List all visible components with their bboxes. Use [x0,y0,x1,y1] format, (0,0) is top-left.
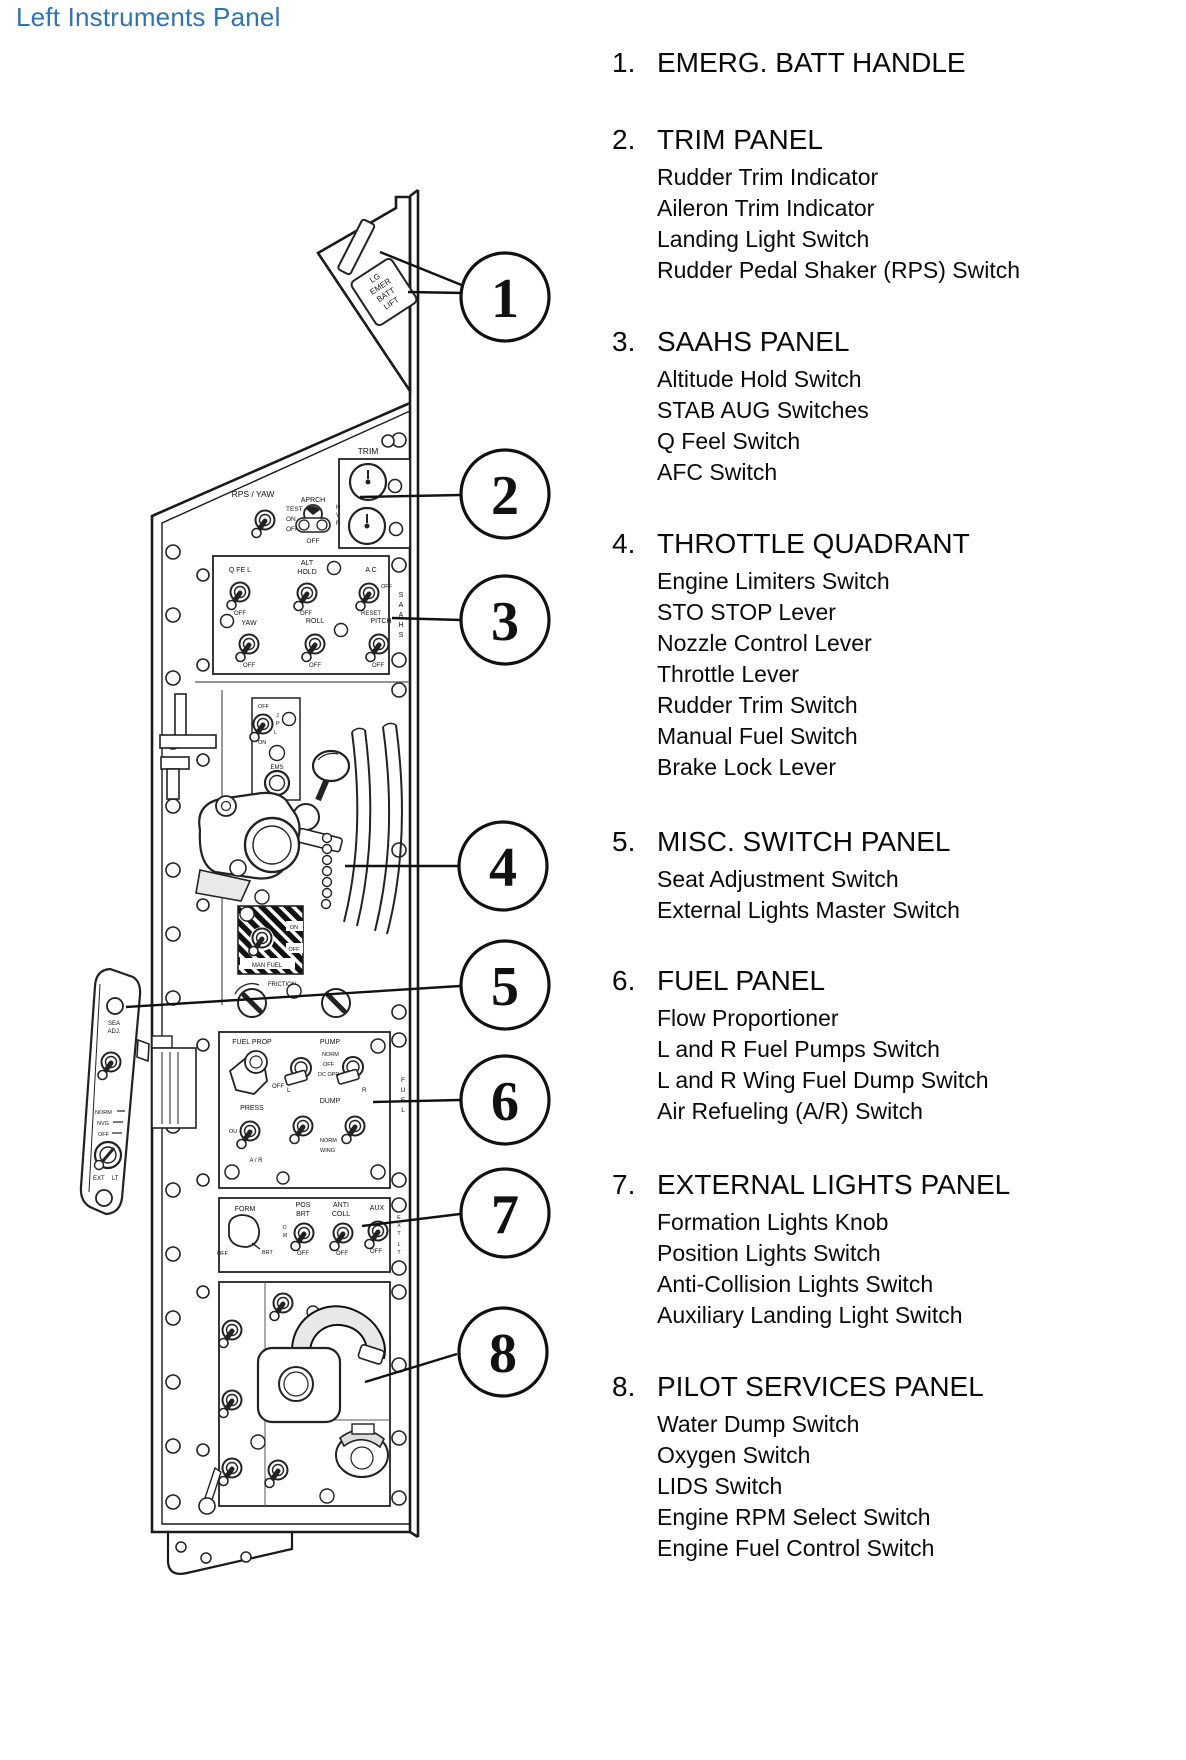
legend-sub: External Lights Master Switch [657,895,1186,926]
anti-coll-label: ANTI [333,1202,349,1209]
svg-text:T: T [397,1231,401,1237]
callout-8: 8 [459,1308,547,1396]
throttle-quadrant: OFF J P L ON EMS [160,682,410,1017]
on-label: ON [290,925,298,931]
off-label: OFF [258,704,270,710]
fuel-prop-label: FUEL PROP [232,1039,272,1046]
legend-sub: Altitude Hold Switch [657,364,1186,395]
seat-adjust-label: SEA [108,1021,120,1027]
legend-item-8: 8.PILOT SERVICES PANEL Water Dump Switch… [612,1370,1186,1564]
svg-text:4: 4 [489,837,517,899]
a-r-label: A / R [249,1158,263,1164]
legend-sub: Auxiliary Landing Light Switch [657,1300,1186,1331]
legend-item-1: 1.EMERG. BATT HANDLE [612,46,1186,80]
rps-yaw-controls: RPS / YAW TEST ON OFF APRCH H V R OFF [232,489,341,545]
off-label: OFF [289,947,301,953]
off-label: OFF [309,663,321,669]
legend-sub: Brake Lock Lever [657,752,1186,783]
svg-text:A: A [399,602,404,609]
legend-sub: Seat Adjustment Switch [657,864,1186,895]
external-lights-master-switch [95,1142,122,1170]
legend-heading: THROTTLE QUADRANT [657,528,970,559]
legend-heading: MISC. SWITCH PANEL [657,826,951,857]
trim-label: TRIM [358,446,379,456]
legend-sub: AFC Switch [657,457,1186,488]
legend-sub: Throttle Lever [657,659,1186,690]
legend-num: 6. [612,964,657,998]
legend-heading: SAAHS PANEL [657,326,849,357]
off-label: OFF [234,611,246,617]
ext-lt-label: LT [112,1176,119,1182]
legend-sub: STAB AUG Switches [657,395,1186,426]
svg-text:2: 2 [491,465,519,527]
man-fuel-label: MAN FUEL [252,963,283,969]
l-label: L [287,1087,291,1094]
legend-num: 2. [612,123,657,157]
legend-num: 7. [612,1168,657,1202]
legend-num: 8. [612,1370,657,1404]
legend-sub: LIDS Switch [657,1471,1186,1502]
svg-text:8: 8 [489,1323,517,1385]
legend-heading: PILOT SERVICES PANEL [657,1371,984,1402]
legend-sub: Rudder Trim Indicator [657,162,1186,193]
svg-text:S: S [399,632,404,639]
callout-3: 3 [461,576,549,664]
l-label: L [274,730,277,736]
on-label: ON [286,516,296,523]
legend-sub: Position Lights Switch [657,1238,1186,1269]
engine-limiters-panel: OFF J P L ON EMS [250,698,300,800]
pos-brt-label: POS [296,1202,311,1209]
reset-label: RESET [361,611,381,617]
legend-sub: Engine Limiters Switch [657,566,1186,597]
callout-6: 6 [461,1056,549,1144]
legend-sub: Formation Lights Knob [657,1207,1186,1238]
dc-opr-label: DC OPR [318,1072,339,1078]
off-label: OFF [297,1251,309,1257]
fuel-vertical-label: F U E L [401,1077,406,1114]
alt-hold-label: ALT [301,560,314,567]
legend-sub: Water Dump Switch [657,1409,1186,1440]
saahs-vertical-label: S A A H S [398,592,403,639]
callouts: 1 2 3 4 5 6 7 8 [459,253,549,1396]
legend-sub: Q Feel Switch [657,426,1186,457]
ou-label: OU [229,1129,237,1135]
off-label: OFF [98,1132,110,1138]
svg-text:L: L [401,1107,405,1114]
v-label: V [336,513,340,519]
fuel-panel: FUEL PROP OFF PUMP NORM OFF DC OPR L R D… [219,1032,406,1188]
legend-sub: Rudder Pedal Shaker (RPS) Switch [657,255,1186,286]
legend-sub: Anti-Collision Lights Switch [657,1269,1186,1300]
legend-sub: Rudder Trim Switch [657,690,1186,721]
j-label: J [276,713,279,719]
norm-label: NORM [320,1138,337,1144]
legend-num: 1. [612,46,657,80]
callout-7: 7 [461,1169,549,1257]
r-label: R [336,521,341,527]
off-label: OFF [300,611,312,617]
rps-yaw-label: RPS / YAW [232,489,275,499]
svg-text:U: U [401,1087,406,1094]
on-label: ON [258,740,266,746]
off-label: OFF [243,663,255,669]
rps-switch [252,511,275,538]
legend-sub: Landing Light Switch [657,224,1186,255]
legend-item-5: 5.MISC. SWITCH PANEL Seat Adjustment Swi… [612,825,1186,926]
aux-label: AUX [370,1205,385,1212]
dim-label: M [283,1233,287,1239]
r-label: R [362,1087,367,1094]
test-label: TEST [286,506,303,513]
anti-coll-label: COLL [332,1211,350,1218]
off-label: OFF [323,1062,335,1068]
norm-label: NORM [95,1110,112,1116]
brt-label: BRT [262,1250,274,1256]
lever-tracks [344,723,402,934]
callout-1: 1 [461,253,549,341]
svg-text:1: 1 [491,268,519,330]
pump-label: PUMP [320,1039,341,1046]
legend-heading: TRIM PANEL [657,124,823,155]
press-label: PRESS [240,1105,264,1112]
svg-text:5: 5 [491,956,519,1018]
legend-sub: L and R Wing Fuel Dump Switch [657,1065,1186,1096]
throttle-lever [313,751,349,800]
legend-sub: L and R Fuel Pumps Switch [657,1034,1186,1065]
legend-num: 5. [612,825,657,859]
callout-4: 4 [459,822,547,910]
svg-text:7: 7 [491,1184,519,1246]
form-label: FORM [235,1206,256,1213]
legend-sub: Oxygen Switch [657,1440,1186,1471]
roll-label: ROLL [306,618,324,625]
off-label: OFF [381,584,393,590]
legend-sub: Aileron Trim Indicator [657,193,1186,224]
legend-num: 3. [612,325,657,359]
svg-text:H: H [398,622,403,629]
q-feel-label: Q FE L [229,567,251,574]
off-label: OFF [217,1251,229,1257]
dim-label: D [283,1225,287,1231]
legend-sub: Manual Fuel Switch [657,721,1186,752]
pos-brt-label: BRT [296,1211,311,1218]
afc-label: A C [365,567,376,574]
throttle-assembly [196,793,300,904]
legend-sub: Nozzle Control Lever [657,628,1186,659]
legend-heading: FUEL PANEL [657,965,825,996]
seat-adjust-label: ADJ. [107,1029,120,1035]
external-lights-panel: FORM OFF BRT POS BRT D M OFF ANTI COLL O… [217,1198,401,1272]
off-label: OFF [370,1249,382,1255]
aprch-label: APRCH [301,497,326,504]
aileron-trim-indicator [349,508,385,544]
page-title: Left Instruments Panel [16,2,281,33]
legend-item-4: 4.THROTTLE QUADRANT Engine Limiters Swit… [612,527,1186,783]
ext-lt-label: EXT [93,1176,105,1182]
svg-text:S: S [399,592,404,599]
svg-text:L: L [397,1242,400,1248]
legend-item-7: 7.EXTERNAL LIGHTS PANEL Formation Lights… [612,1168,1186,1331]
pitch-label: PITCH [371,618,392,625]
svg-text:6: 6 [491,1071,519,1133]
legend-sub: Air Refueling (A/R) Switch [657,1096,1186,1127]
h-label: H [336,505,340,511]
yaw-label: YAW [241,620,257,627]
off-label: OFF [336,1251,348,1257]
norm-label: NORM [322,1052,339,1058]
p-label: P [276,721,280,727]
saahs-panel: Q FE L OFF ALT HOLD OFF A C OFF RESET YA… [213,556,404,674]
legend-heading: EXTERNAL LIGHTS PANEL [657,1169,1010,1200]
nvg-label: NVG [97,1121,109,1127]
formation-lights-knob [229,1215,259,1247]
legend-sub: Flow Proportioner [657,1003,1186,1034]
off-label: OFF [272,1084,284,1090]
services-block [258,1348,340,1422]
legend-item-6: 6.FUEL PANEL Flow Proportioner L and R F… [612,964,1186,1127]
callout-5: 5 [461,941,549,1029]
legend-item-2: 2.TRIM PANEL Rudder Trim Indicator Ailer… [612,123,1186,286]
legend-item-3: 3.SAAHS PANEL Altitude Hold Switch STAB … [612,325,1186,488]
svg-text:X: X [397,1223,401,1229]
wing-label: WING [320,1148,335,1154]
pilot-services-panel [199,1282,390,1514]
legend-sub: Engine Fuel Control Switch [657,1533,1186,1564]
legend-sub: Engine RPM Select Switch [657,1502,1186,1533]
legend-num: 4. [612,527,657,561]
alt-hold-label: HOLD [297,569,316,576]
off-label: OFF [372,663,384,669]
callout-2: 2 [461,450,549,538]
dump-label: DUMP [320,1098,341,1105]
legend-heading: EMERG. BATT HANDLE [657,47,966,78]
svg-text:F: F [401,1077,405,1084]
rudder-trim-indicator [350,464,386,500]
manual-fuel-area: ON OFF MAN FUEL [238,906,303,974]
svg-text:T: T [397,1250,401,1256]
bottom-foot [168,1532,292,1574]
misc-panel-bracket [152,1036,196,1128]
svg-text:3: 3 [491,591,519,653]
left-instruments-panel-diagram: LG EMER BATT LIFT TRIM RPS / YAW [0,150,600,1615]
off-label: OFF [307,538,320,545]
legend-sub: STO STOP Lever [657,597,1186,628]
